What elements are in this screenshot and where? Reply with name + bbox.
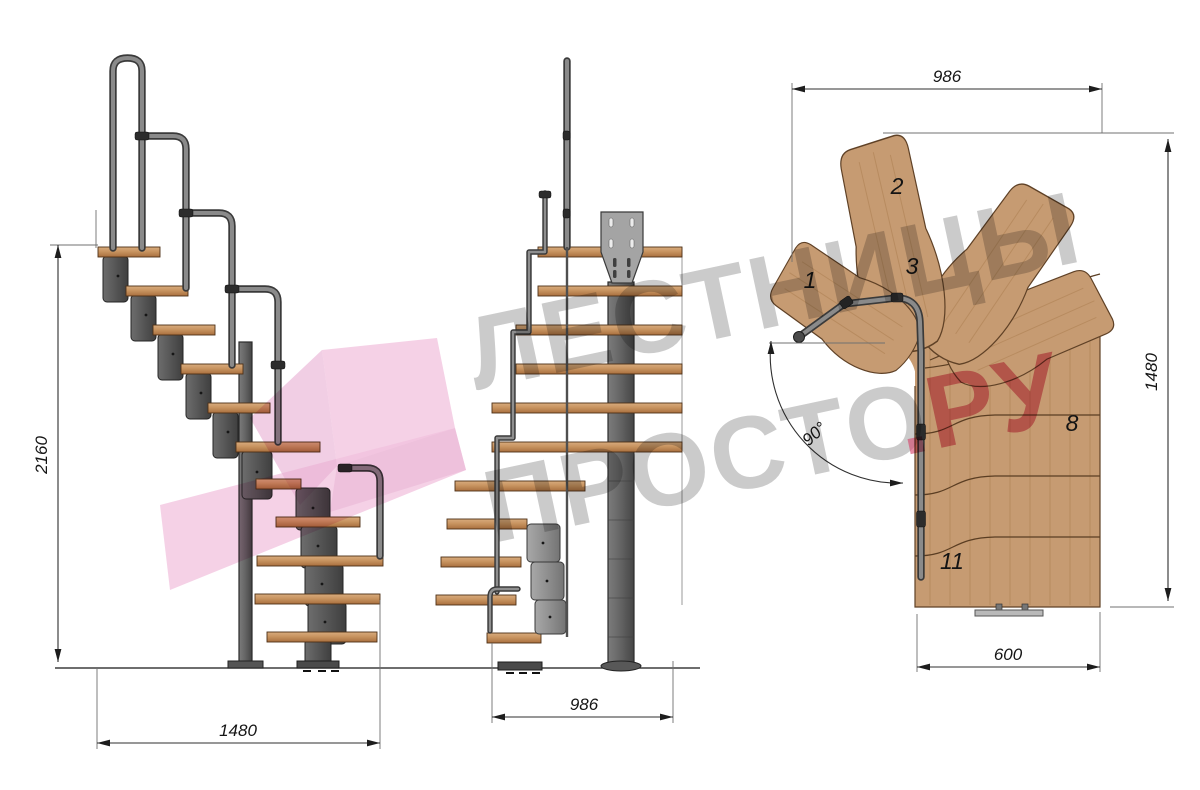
dim-side-run-value: 1480	[219, 721, 257, 740]
tread-number-2: 2	[890, 173, 904, 199]
post-joint	[563, 131, 570, 140]
tread-number-11: 11	[940, 548, 964, 574]
front-entry-base	[498, 662, 542, 670]
dim-plan-tread-width-value: 600	[994, 645, 1023, 664]
post-joint	[563, 209, 570, 218]
dim-plan-tread-width: 600	[917, 612, 1100, 672]
rail-clamp	[225, 285, 239, 293]
dim-plan-width-value: 986	[933, 67, 962, 86]
dim-front-width-value: 986	[570, 695, 599, 714]
rail-connector	[917, 511, 926, 527]
rail-clamp	[271, 361, 285, 369]
staircase-drawing: 2160 1480	[0, 0, 1200, 790]
dim-front-width: 986	[492, 643, 673, 723]
entry-base-plate	[297, 661, 339, 668]
front-column-base	[601, 661, 641, 671]
dim-plan-depth-value: 1480	[1142, 353, 1161, 391]
dim-side-height-value: 2160	[32, 436, 51, 475]
rail-clamp	[135, 132, 149, 140]
column-base-plate	[228, 661, 263, 668]
dim-side-height: 2160	[32, 245, 98, 662]
rail-clamp	[179, 209, 193, 217]
